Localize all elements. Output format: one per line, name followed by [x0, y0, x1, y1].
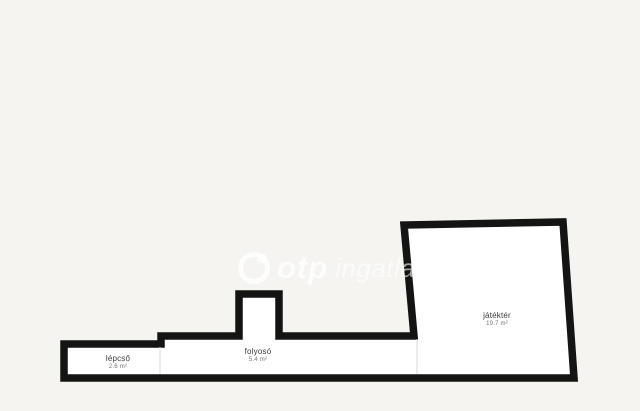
room-name: lépcső — [106, 354, 130, 364]
floorplan-canvas: otp ingatlanpont lépcső 2.6 m² folyosó 5… — [0, 0, 640, 411]
room-label-folyoso: folyosó 5.4 m² — [245, 347, 272, 365]
room-label-jatekter: játéktér 19.7 m² — [483, 311, 511, 329]
room-area: 19.7 m² — [483, 321, 511, 329]
floorplan-drawing — [0, 0, 640, 411]
room-area: 2.6 m² — [106, 364, 130, 372]
room-label-lepcso: lépcső 2.6 m² — [106, 354, 130, 372]
room-name: folyosó — [245, 347, 272, 357]
room-area: 5.4 m² — [245, 357, 272, 365]
room-name: játéktér — [483, 311, 511, 321]
floorplan-walls — [64, 222, 574, 378]
